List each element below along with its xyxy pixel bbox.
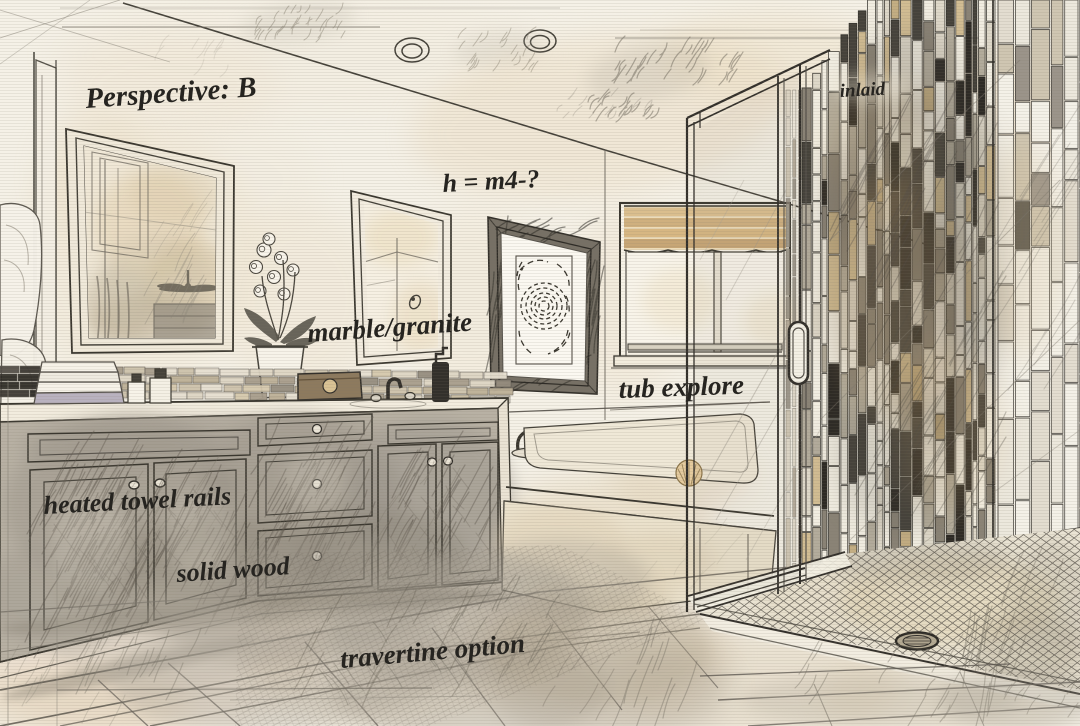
svg-text:inlaid: inlaid bbox=[839, 79, 886, 102]
svg-text:h = m4-?: h = m4-? bbox=[442, 164, 541, 198]
svg-text:tub explore: tub explore bbox=[618, 370, 744, 404]
